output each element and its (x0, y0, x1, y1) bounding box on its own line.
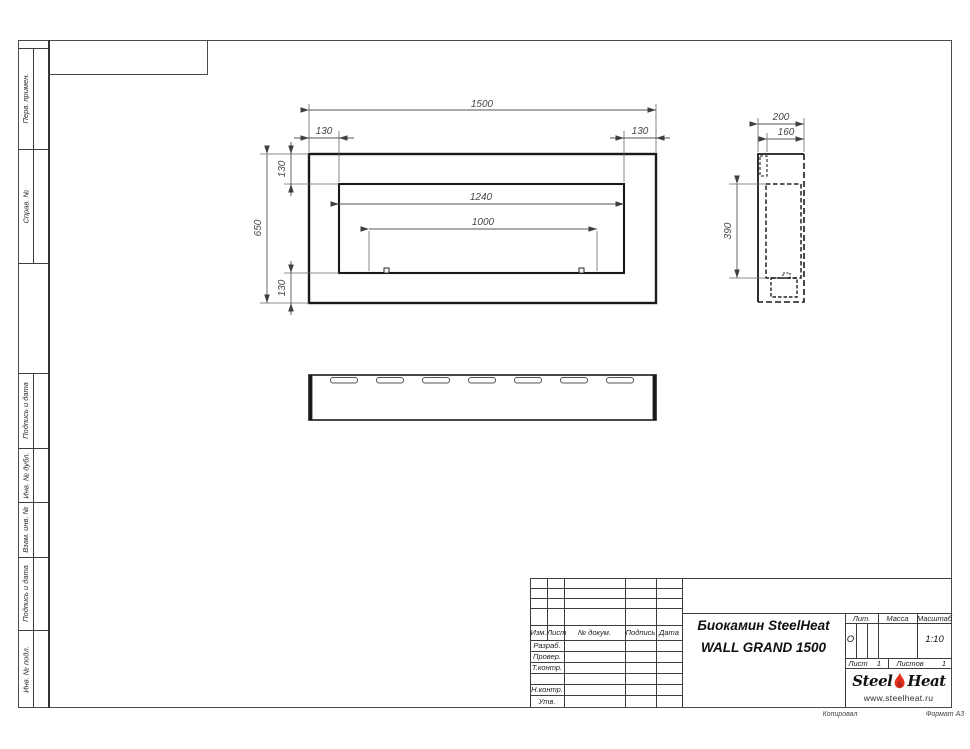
logo-word-heat: Heat (907, 672, 945, 690)
tb-line (682, 578, 683, 708)
copied-note: Копировал (805, 710, 875, 719)
margin-label-podpis-data-2: Подпись и дата (20, 557, 31, 630)
logo-word-steel: Steel (852, 672, 892, 690)
margin-label-inv-podl: Инв. № подл. (20, 630, 31, 708)
tb-sheet-value: 1 (872, 659, 886, 669)
margin-label-inv-dubl: Инв. № дубл. (20, 448, 31, 502)
tb-header-list: Лист (547, 628, 564, 638)
doc-title-line1: Биокамин SteelHeat (684, 618, 843, 634)
margin-line (33, 373, 34, 708)
tb-line (625, 578, 626, 708)
tb-header-sign: Подпись (625, 628, 656, 638)
format-note: Формат А3 (910, 710, 970, 719)
tb-line (656, 578, 657, 708)
tb-sheets-label: Листов (890, 659, 930, 669)
margin-label-sprav-no: Справ. № (20, 149, 31, 263)
tb-sheet-label: Лист (846, 659, 870, 669)
tb-header-izm: Изм. (530, 628, 547, 638)
tb-line (867, 623, 868, 658)
reserve-box (48, 40, 208, 75)
flame-icon (893, 672, 906, 690)
tb-scale-label: Масштаб (917, 614, 952, 624)
margin-label-podpis-data-1: Подпись и дата (20, 373, 31, 448)
tb-header-doc: № докум. (564, 628, 625, 638)
tb-line (530, 578, 952, 579)
tb-role-developed: Разраб. (530, 641, 564, 651)
margin-label-perv-primen: Перв. примен. (20, 48, 31, 149)
tb-line (530, 608, 682, 609)
tb-line (530, 588, 682, 589)
margin-label-vzam-inv: Взам. инв. № (20, 502, 31, 557)
tb-role-checked: Провер. (530, 652, 564, 662)
tb-lit-value: О (845, 634, 856, 645)
inner-frame-line (48, 40, 50, 708)
drawing-sheet: 1500 130 130 650 130 130 1240 1000 (0, 0, 970, 749)
tb-line (530, 625, 682, 626)
tb-sheets-value: 1 (938, 659, 950, 669)
sheet-border (18, 40, 952, 708)
tb-role-tcontrol: Т.контр. (530, 663, 564, 673)
tb-header-date: Дата (656, 628, 682, 638)
doc-title-line2: WALL GRAND 1500 (684, 640, 843, 656)
margin-line (33, 48, 34, 263)
tb-line (530, 598, 682, 599)
tb-mass-label: Масса (878, 614, 917, 624)
tb-line (530, 673, 682, 674)
tb-scale-value: 1:10 (917, 634, 952, 645)
tb-lit-label: Лит. (845, 614, 878, 624)
steelheat-logo: Steel Heat (846, 670, 952, 692)
tb-role-ncontrol: Н.контр. (530, 685, 564, 695)
tb-role-approved: Утв. (530, 697, 564, 707)
tb-line (888, 658, 889, 668)
tb-line (564, 578, 565, 708)
tb-line (856, 623, 857, 658)
logo-site-url: www.steelheat.ru (845, 693, 952, 703)
